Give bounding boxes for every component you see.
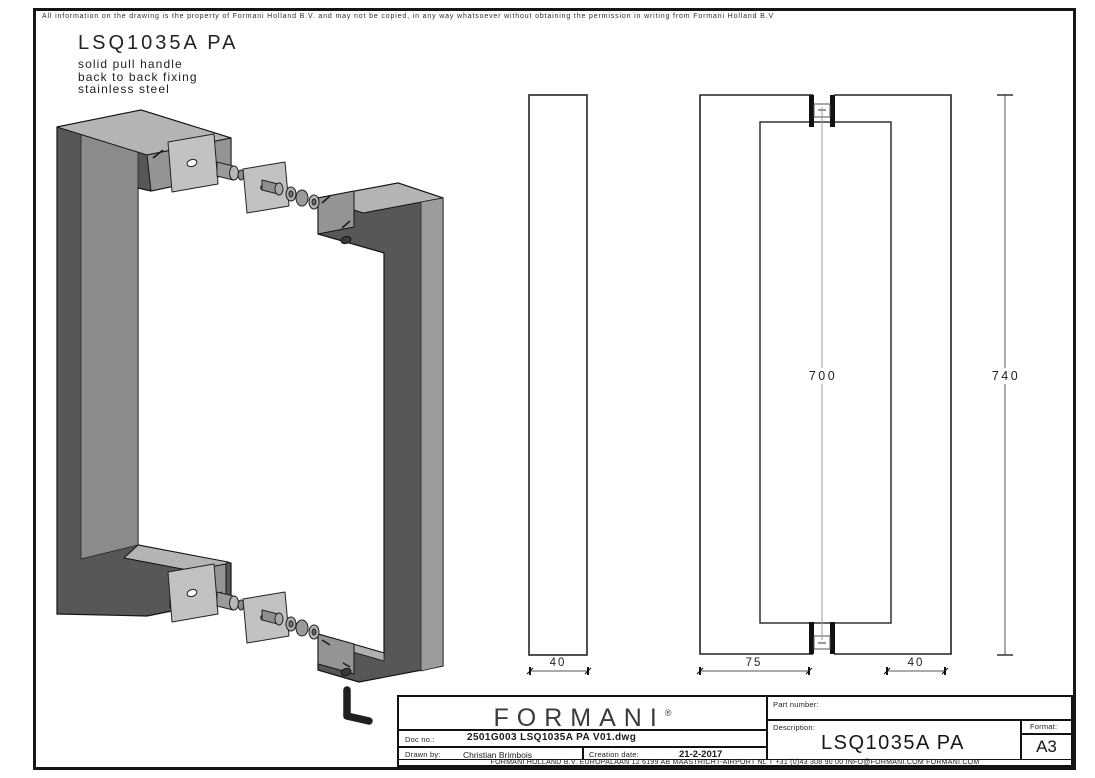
front-view-right-outline [834, 95, 951, 654]
drawing-canvas: 40 75 40 700 740 [0, 0, 1095, 778]
dim-overall-length: 740 [992, 95, 1020, 655]
part-number-label: Part number: [773, 700, 819, 709]
title-block: FORMANI® Part number: Doc no.: 2501G003 … [397, 695, 1073, 767]
format-value: A3 [1020, 733, 1073, 759]
dim-side-width-label: 40 [550, 657, 567, 669]
dim-front-depth-label: 75 [746, 657, 763, 669]
doc-no-value: 2501G003 LSQ1035A PA V01.dwg [467, 732, 636, 743]
dimensions: 40 75 40 700 740 [527, 95, 1020, 675]
dim-front-depth: 75 [697, 657, 812, 675]
allen-key [347, 690, 369, 721]
dim-overall-length-label: 740 [992, 369, 1020, 383]
iso-view [57, 110, 443, 721]
front-view-left-outline [700, 95, 813, 654]
iso-fixing-hardware-top [168, 134, 319, 213]
drawing-sheet: All information on the drawing is the pr… [0, 0, 1095, 778]
iso-fixing-hardware-bottom [168, 564, 319, 643]
formani-logo-text: FORMANI [494, 704, 665, 732]
dim-center-length-label: 700 [809, 369, 837, 383]
tb-divider-v-date [582, 747, 584, 759]
doc-no-label: Doc no.: [405, 735, 435, 744]
side-view-outline [529, 95, 587, 655]
iso-right-handle [318, 183, 443, 682]
dim-back-width: 40 [884, 657, 948, 675]
dim-back-width-label: 40 [908, 657, 925, 669]
dim-side-width: 40 [527, 657, 591, 675]
tb-divider-h-part [766, 719, 1071, 721]
company-address: FORMANI HOLLAND B.V. EUROPALAAN 12 6199 … [399, 759, 1071, 766]
formani-logo: FORMANI® [399, 697, 766, 729]
format-label: Format: [1030, 722, 1057, 731]
description-value: LSQ1035A PA [766, 727, 1020, 759]
side-view [529, 95, 587, 655]
registered-mark: ® [665, 708, 672, 718]
